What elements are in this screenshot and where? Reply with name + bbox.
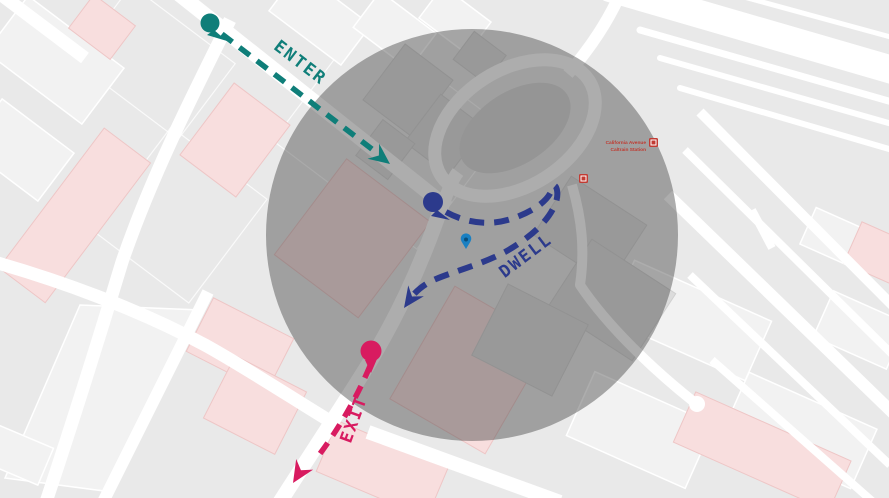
station-label-line1: California Avenue [606,140,647,146]
dwell-start-marker [423,192,443,212]
geofence-circle [266,29,678,441]
enter-start-marker [201,14,220,33]
transit-station-icon-2 [579,174,588,183]
transit-station-icon [649,138,658,147]
exit-start-marker [361,341,382,362]
map-canvas: California Avenue Caltrain Station ENTER… [0,0,889,498]
map-annotation-figure: California Avenue Caltrain Station ENTER… [0,0,889,498]
station-label-line2: Caltrain Station [611,147,647,153]
